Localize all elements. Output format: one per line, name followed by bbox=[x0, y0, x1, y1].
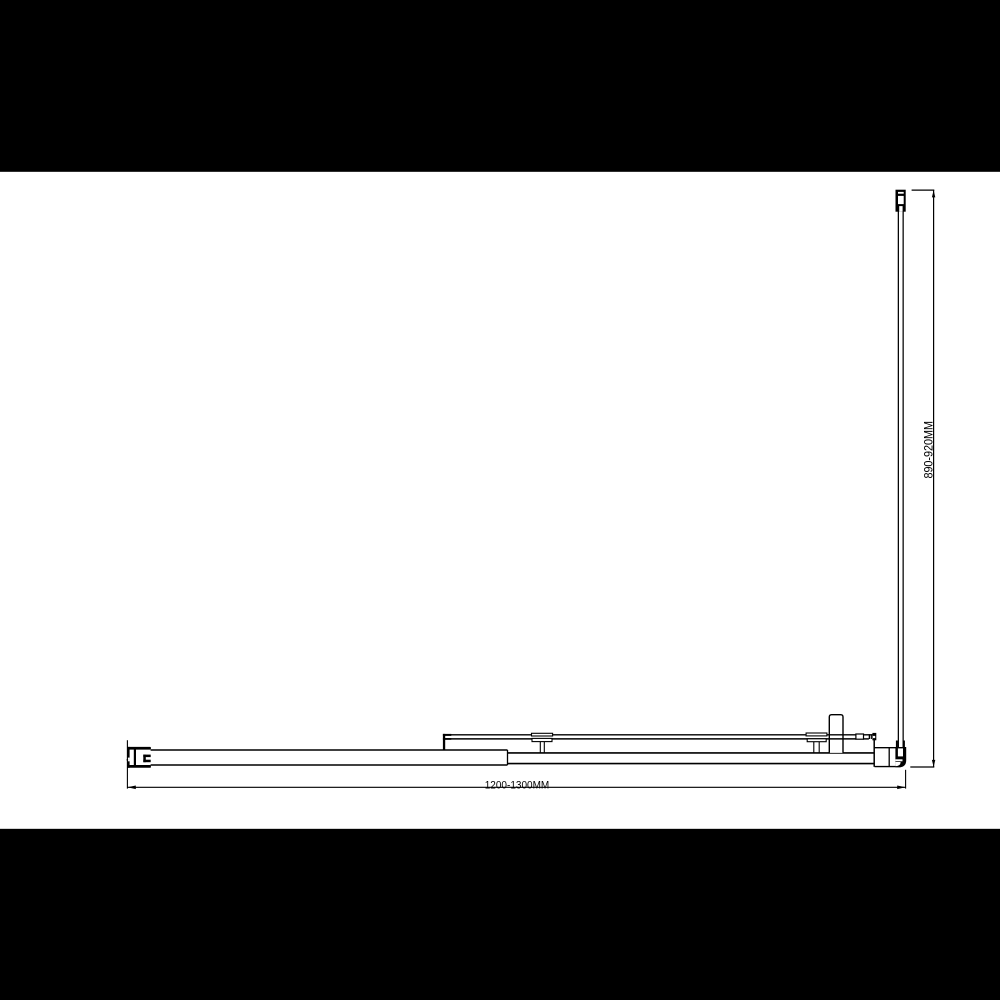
svg-text:890-920MM: 890-920MM bbox=[923, 421, 936, 479]
svg-text:1200-1300MM: 1200-1300MM bbox=[485, 779, 550, 791]
